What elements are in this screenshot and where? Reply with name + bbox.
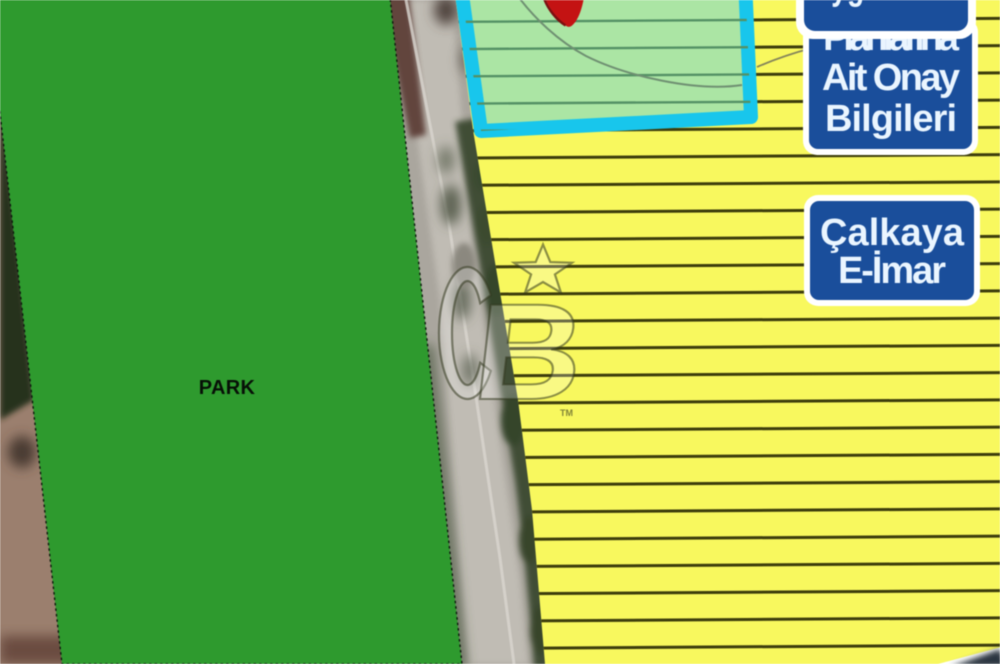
svg-text:PARK: PARK [199, 377, 256, 399]
svg-text:TM: TM [560, 408, 573, 418]
svg-text:B: B [467, 276, 592, 429]
svg-text:Ait Onay: Ait Onay [822, 57, 960, 99]
svg-text:E-İmar: E-İmar [838, 250, 946, 292]
svg-text:Bilgileri: Bilgileri [825, 98, 957, 140]
svg-text:Uygulamalı: Uygulamalı [811, 0, 961, 8]
svg-text:Çalkaya: Çalkaya [820, 212, 965, 254]
